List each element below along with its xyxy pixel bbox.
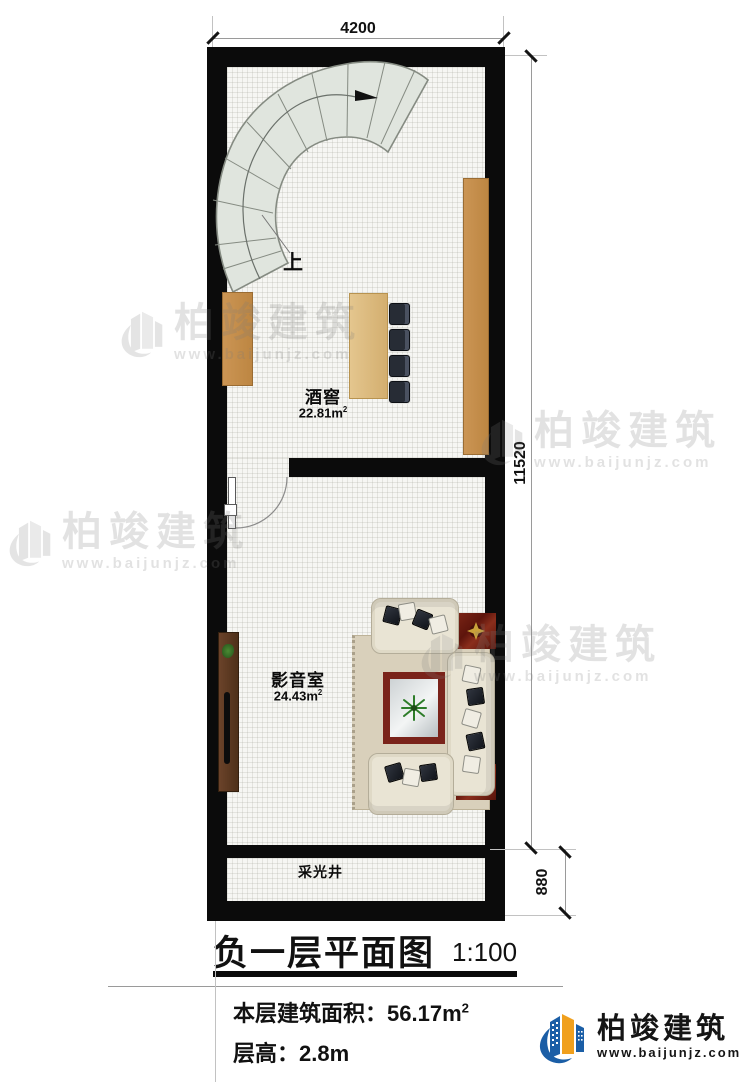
floor-area-text: 本层建筑面积：56.17m2: [233, 996, 469, 1028]
light-well-floor: [227, 858, 485, 901]
wall-bottom: [207, 901, 505, 921]
tv: [224, 692, 230, 764]
wall-light-well: [217, 845, 489, 858]
compass-star-icon: [467, 622, 485, 640]
title-underline: [213, 971, 517, 977]
drawing-scale: 1:100: [452, 937, 517, 968]
room-area-media-room: 24.43m2: [258, 688, 338, 703]
sofa-pillow: [461, 664, 481, 684]
chair: [389, 329, 410, 351]
cabinet-left: [222, 292, 253, 386]
plant-icon: [399, 693, 429, 723]
company-website: www.baijunjz.com: [597, 1045, 741, 1060]
cabinet-right: [463, 178, 489, 455]
drawing-title: 负一层平面图: [213, 925, 435, 976]
coffee-table: [383, 672, 445, 744]
brand-building-icon: [118, 304, 166, 362]
spiral-staircase: [210, 55, 440, 305]
dimension-line-top: [213, 38, 504, 39]
extension-line: [503, 16, 504, 47]
chair: [389, 303, 410, 325]
extension-line: [212, 16, 213, 47]
room-name-light-well: 采光井: [298, 862, 343, 882]
door-swing-arc: [228, 470, 298, 536]
stair-up-label: 上: [283, 246, 303, 275]
sofa-pillow: [419, 763, 438, 782]
dimension-value-top: 4200: [338, 20, 378, 38]
wall-interior-rooms: [289, 458, 485, 477]
brand-building-icon: [536, 1008, 588, 1066]
floor-plan-canvas: 4200 11520 880: [0, 0, 750, 1082]
sofa-pillow: [466, 687, 485, 706]
chair: [389, 381, 410, 403]
door-handle: [224, 504, 237, 516]
sofa-pillow: [462, 755, 481, 774]
chair: [389, 355, 410, 377]
room-area-wine-cellar: 22.81m2: [285, 405, 361, 420]
floor-height-text: 层高：2.8m: [233, 1036, 349, 1068]
sofa-pillow: [465, 731, 485, 751]
dimension-line-right-main: [531, 55, 532, 849]
divider-line: [108, 986, 563, 987]
company-name: 柏竣建筑: [597, 1014, 741, 1046]
brand-building-icon: [6, 513, 54, 571]
extension-line: [505, 55, 547, 56]
dimension-line-right-bottom: [565, 850, 566, 915]
dimension-value-right-bottom: 880: [534, 867, 552, 898]
company-logo: 柏竣建筑 www.baijunjz.com: [536, 1008, 741, 1066]
sofa-pillow: [402, 768, 422, 788]
door-panel: [228, 477, 236, 529]
accent-mat-top: [456, 613, 496, 649]
extension-line: [215, 921, 216, 1082]
dimension-value-right-main: 11520: [512, 439, 530, 487]
